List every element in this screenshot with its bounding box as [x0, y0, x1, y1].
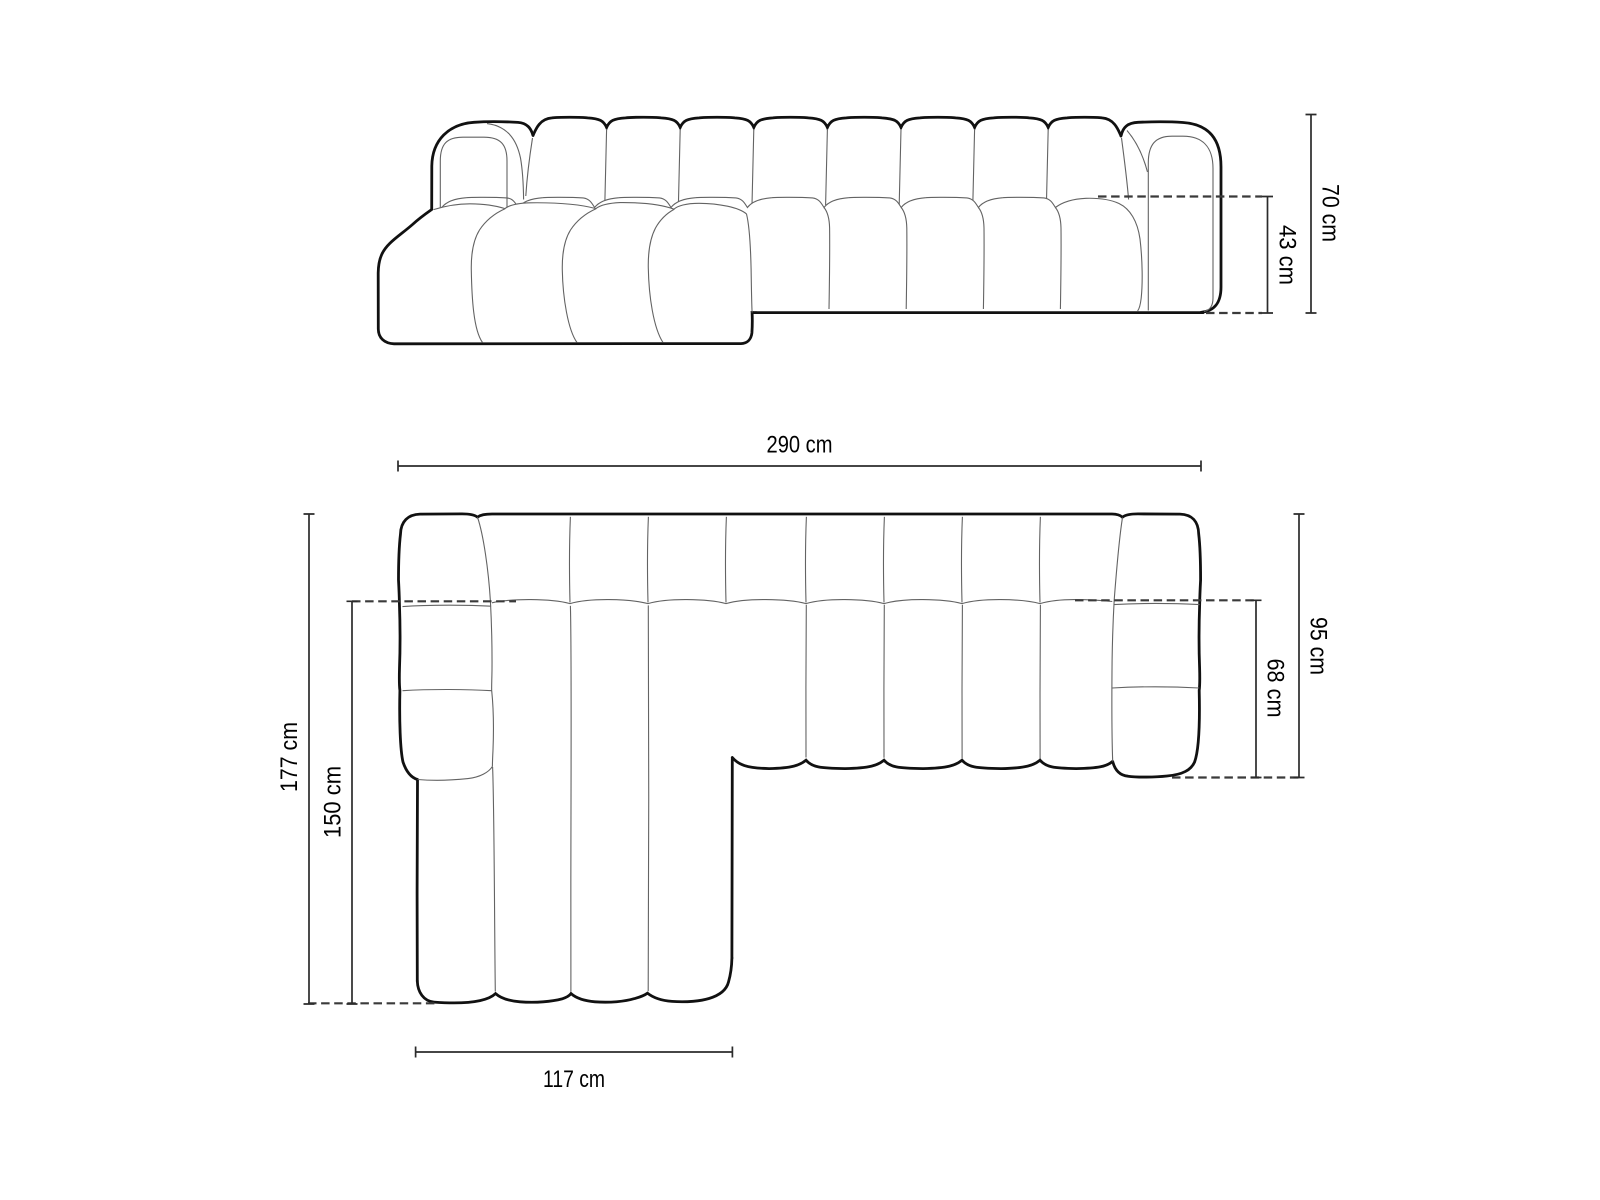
svg-text:95 cm: 95 cm [1305, 617, 1332, 675]
svg-text:117 cm: 117 cm [543, 1066, 605, 1093]
svg-text:43 cm: 43 cm [1274, 225, 1301, 285]
svg-text:177 cm: 177 cm [276, 722, 303, 792]
svg-text:70 cm: 70 cm [1317, 184, 1344, 242]
svg-text:150 cm: 150 cm [320, 766, 347, 838]
svg-text:68 cm: 68 cm [1262, 659, 1289, 718]
svg-text:290 cm: 290 cm [767, 432, 833, 459]
